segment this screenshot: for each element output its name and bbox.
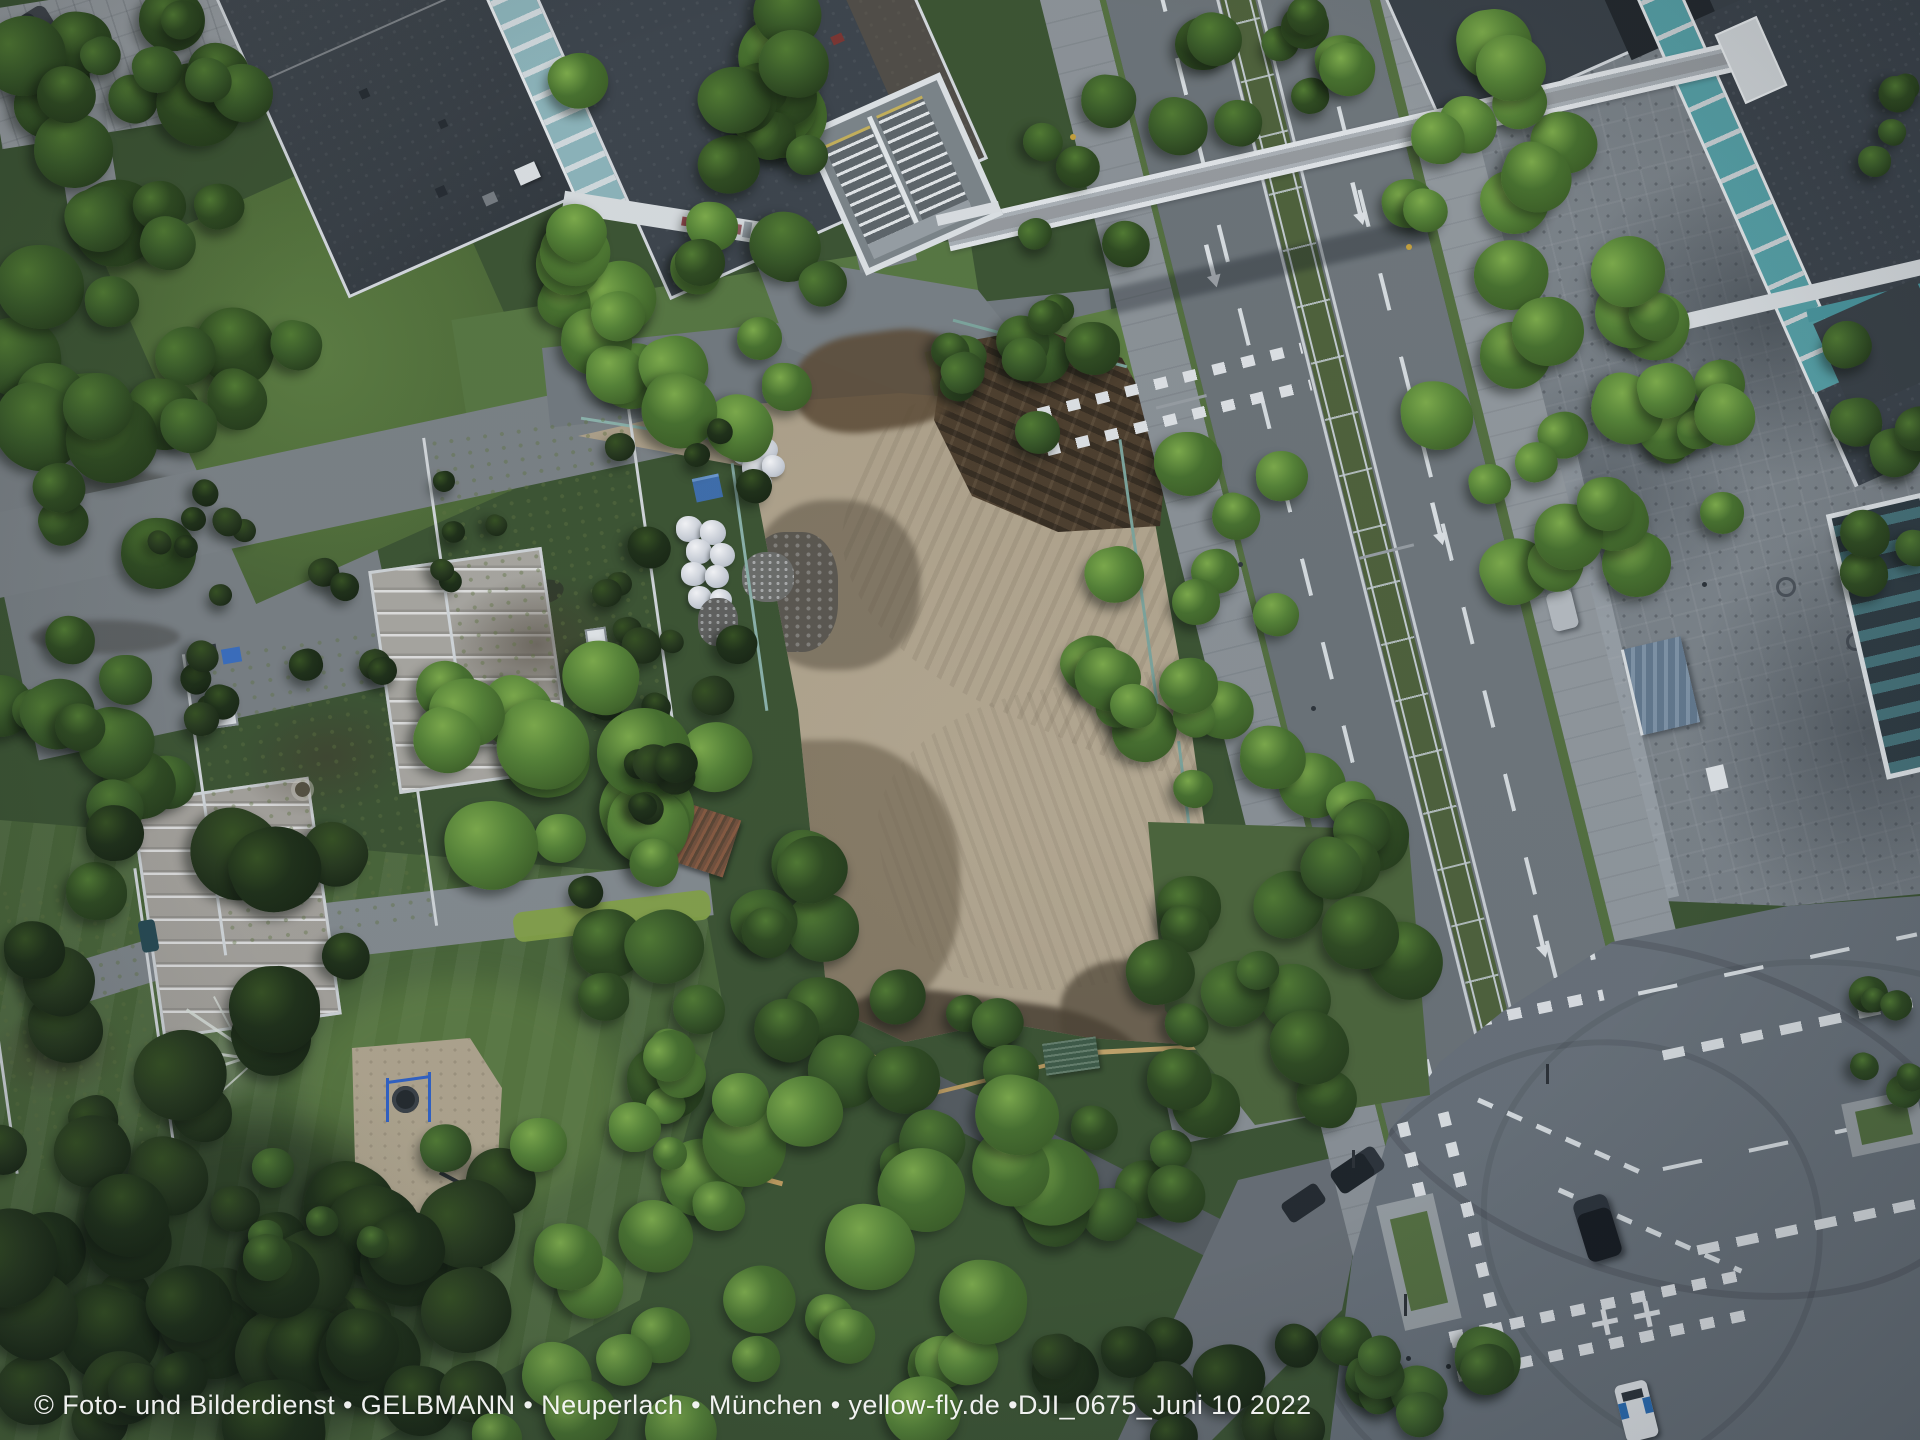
tree-blob xyxy=(686,670,740,723)
tree-blob xyxy=(727,1331,785,1388)
tree-blob xyxy=(1249,589,1303,641)
tree-blob xyxy=(576,971,630,1022)
tree-blob xyxy=(564,871,608,914)
tree-blob xyxy=(1154,432,1222,496)
tree-blob xyxy=(181,507,207,532)
tree-blob xyxy=(1466,461,1514,508)
tree-blob xyxy=(712,620,762,668)
tree-blob xyxy=(1014,410,1060,455)
tree-blob xyxy=(1321,895,1401,971)
tree-blob xyxy=(42,613,97,667)
tree-blob xyxy=(1815,314,1878,375)
tree-blob xyxy=(206,581,234,609)
tree-blob xyxy=(187,475,223,511)
tree-blob xyxy=(1171,768,1214,809)
tree-blob xyxy=(251,1147,296,1190)
tree-blob xyxy=(541,45,616,118)
tree-blob xyxy=(1837,507,1892,560)
aerial-photo-stage: © Foto- und Bilderdienst • GELBMANN • Ne… xyxy=(0,0,1920,1440)
tree-blob xyxy=(785,134,829,176)
tree-blob xyxy=(1254,449,1310,503)
tree-blob xyxy=(1078,72,1139,131)
tree-blob xyxy=(1892,527,1920,570)
tree-blob xyxy=(431,469,456,493)
tree-blob xyxy=(762,363,813,412)
tree-blob xyxy=(1210,96,1266,150)
tree-blob xyxy=(652,1136,687,1170)
tree-blob xyxy=(0,243,85,330)
tree-blob xyxy=(860,960,934,1033)
tree-blob xyxy=(265,316,326,375)
watermark-caption: © Foto- und Bilderdienst • GELBMANN • Ne… xyxy=(34,1390,1312,1421)
tree-blob xyxy=(737,317,782,360)
tree-blob xyxy=(62,372,133,440)
tree-blob xyxy=(604,432,637,463)
tree-blob xyxy=(82,273,142,330)
tree-blob xyxy=(316,927,376,986)
tree-blob xyxy=(0,1117,34,1182)
tree-blob xyxy=(441,796,543,894)
tree-blob xyxy=(1143,92,1214,160)
tree-blob xyxy=(439,518,467,545)
tree-blob xyxy=(99,655,152,705)
tree-blob xyxy=(1266,1317,1325,1375)
tree-blob xyxy=(1700,492,1745,535)
tree-blob xyxy=(1874,114,1910,149)
tree-blob xyxy=(1475,34,1546,101)
tree-blob xyxy=(1206,487,1267,547)
tree-blob xyxy=(1014,212,1058,255)
tree-blob xyxy=(534,813,587,864)
tree-blob xyxy=(1079,541,1149,609)
tree-blob xyxy=(285,645,327,686)
tree-blob xyxy=(1857,145,1893,179)
tree-blob xyxy=(865,1042,944,1117)
tree-blob xyxy=(670,982,728,1037)
tree-blob xyxy=(713,1254,807,1346)
tree-blob xyxy=(732,464,776,507)
tree-blob xyxy=(328,570,362,603)
tree-blob xyxy=(66,862,127,920)
tree-blob xyxy=(482,511,511,539)
tree-blob xyxy=(622,521,677,574)
tree-blob xyxy=(1065,322,1121,376)
tree-blob xyxy=(1399,379,1476,453)
tree-blob xyxy=(1095,214,1156,274)
tree-blob xyxy=(189,176,250,235)
tree-blob xyxy=(1847,1049,1883,1084)
tree-layer xyxy=(0,0,1920,1440)
tree-blob xyxy=(614,897,716,997)
